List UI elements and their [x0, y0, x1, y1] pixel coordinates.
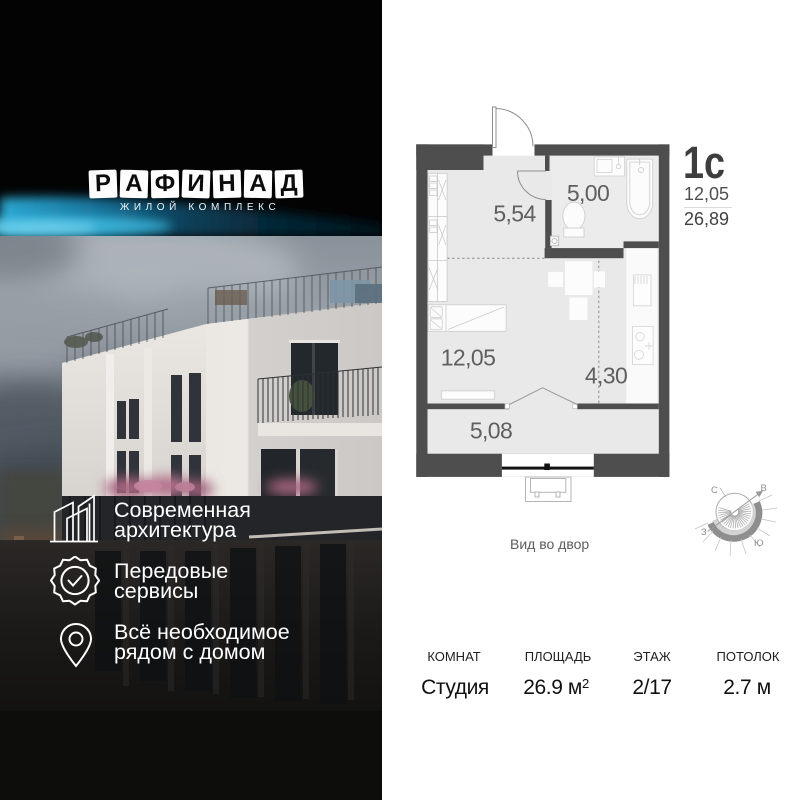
svg-text:12,05: 12,05 [441, 345, 496, 371]
svg-text:5,00: 5,00 [567, 180, 609, 206]
svg-text:5,08: 5,08 [470, 418, 512, 444]
svg-text:5,54: 5,54 [493, 201, 536, 227]
svg-text:З: З [701, 527, 707, 538]
svg-text:В: В [761, 483, 767, 494]
svg-text:Ю: Ю [754, 538, 764, 549]
svg-text:С: С [711, 485, 718, 496]
svg-text:4,30: 4,30 [585, 363, 627, 389]
